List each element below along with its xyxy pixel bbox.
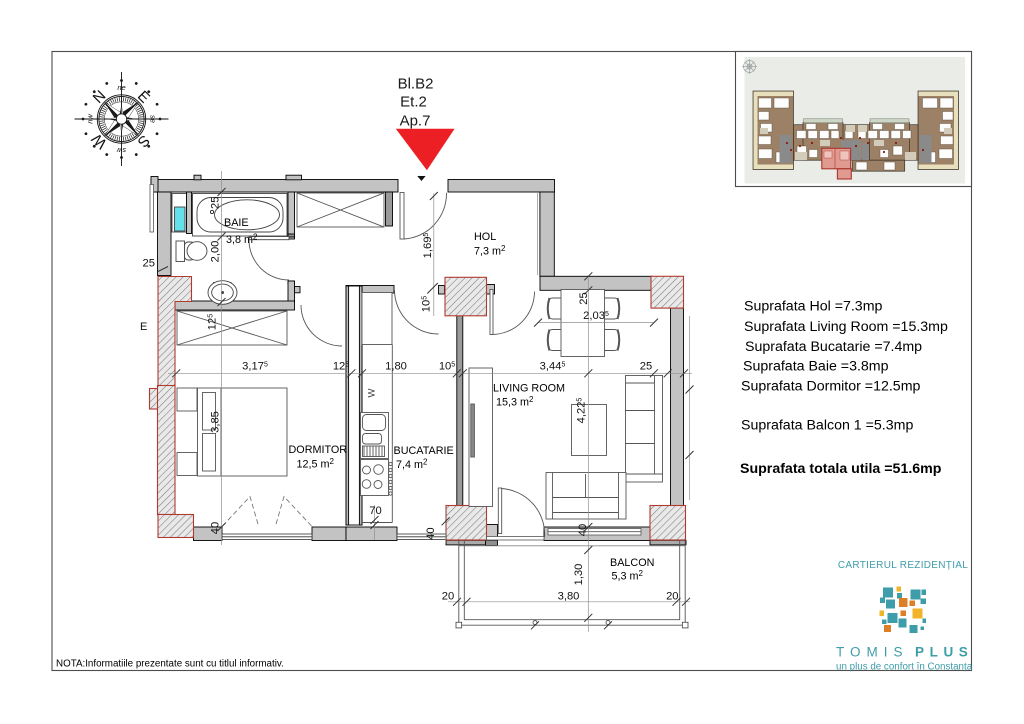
svg-text:BALCON: BALCON <box>610 557 654 569</box>
svg-text:Bl.B2: Bl.B2 <box>398 76 434 93</box>
svg-text:25: 25 <box>210 197 222 209</box>
svg-text:Suprafata Dormitor =12.5mp: Suprafata Dormitor =12.5mp <box>741 379 921 395</box>
svg-text:ne: ne <box>117 83 125 92</box>
svg-text:BAIE: BAIE <box>224 217 249 229</box>
svg-text:W: W <box>367 388 378 397</box>
svg-text:CARTIERUL REZIDENȚIAL: CARTIERUL REZIDENȚIAL <box>838 560 968 571</box>
svg-text:Suprafata Hol =7.3mp: Suprafata Hol =7.3mp <box>744 299 883 315</box>
svg-text:Suprafata Living Room =15.3mp: Suprafata Living Room =15.3mp <box>744 319 948 335</box>
svg-text:7,3 m2: 7,3 m2 <box>474 244 506 258</box>
svg-text:DORMITOR: DORMITOR <box>289 444 348 456</box>
svg-text:E: E <box>140 321 147 333</box>
svg-text:Suprafata totala utila =51.6mp: Suprafata totala utila =51.6mp <box>740 461 942 477</box>
svg-text:Suprafata Baie =3.8mp: Suprafata Baie =3.8mp <box>743 359 889 375</box>
svg-text:3,80: 3,80 <box>558 591 580 603</box>
svg-text:25: 25 <box>640 361 652 373</box>
svg-text:3,445: 3,445 <box>540 361 566 373</box>
svg-text:Suprafata Balcon 1 =5.3mp: Suprafata Balcon 1 =5.3mp <box>741 418 913 434</box>
svg-text:3,175: 3,175 <box>242 361 268 373</box>
svg-text:se: se <box>149 115 158 123</box>
svg-text:25: 25 <box>578 292 590 304</box>
svg-text:Suprafata Bucatarie =7.4mp: Suprafata Bucatarie =7.4mp <box>745 339 922 355</box>
svg-text:Ap.7: Ap.7 <box>400 113 431 130</box>
svg-text:40: 40 <box>425 527 437 539</box>
svg-text:25: 25 <box>143 258 155 270</box>
svg-text:PLUS: PLUS <box>915 645 973 660</box>
svg-text:70: 70 <box>369 505 381 517</box>
svg-text:20: 20 <box>666 591 678 603</box>
svg-text:BUCATARIE: BUCATARIE <box>394 445 454 457</box>
svg-text:1,30: 1,30 <box>573 564 585 586</box>
svg-text:5,3 m2: 5,3 m2 <box>612 569 644 583</box>
svg-text:40: 40 <box>209 522 221 534</box>
svg-text:105: 105 <box>439 361 455 373</box>
svg-text:Et.2: Et.2 <box>400 94 427 111</box>
svg-text:40: 40 <box>577 524 589 536</box>
svg-text:3,85: 3,85 <box>210 411 222 433</box>
svg-text:1,695: 1,695 <box>422 233 434 259</box>
svg-text:4,225: 4,225 <box>576 398 588 424</box>
svg-text:sw: sw <box>116 146 126 155</box>
svg-text:LIVING ROOM: LIVING ROOM <box>493 383 565 395</box>
svg-text:7,4 m2: 7,4 m2 <box>396 458 428 472</box>
svg-text:1,80: 1,80 <box>385 361 407 373</box>
svg-text:NOTA:Informatiile prezentate s: NOTA:Informatiile prezentate sunt cu tit… <box>56 659 284 670</box>
svg-text:15,3 m2: 15,3 m2 <box>496 395 534 409</box>
svg-text:TOMIS: TOMIS <box>836 645 909 660</box>
svg-text:12,5 m2: 12,5 m2 <box>297 457 335 471</box>
svg-text:nw: nw <box>86 114 95 124</box>
svg-text:2,00: 2,00 <box>210 241 222 263</box>
svg-text:2,035: 2,035 <box>583 310 609 322</box>
svg-text:20: 20 <box>442 591 454 603</box>
svg-text:un plus de confort în Constanț: un plus de confort în Constanța <box>836 662 973 673</box>
svg-text:HOL: HOL <box>474 231 496 243</box>
svg-text:105: 105 <box>421 296 433 312</box>
svg-text:3,8 m2: 3,8 m2 <box>226 233 258 247</box>
